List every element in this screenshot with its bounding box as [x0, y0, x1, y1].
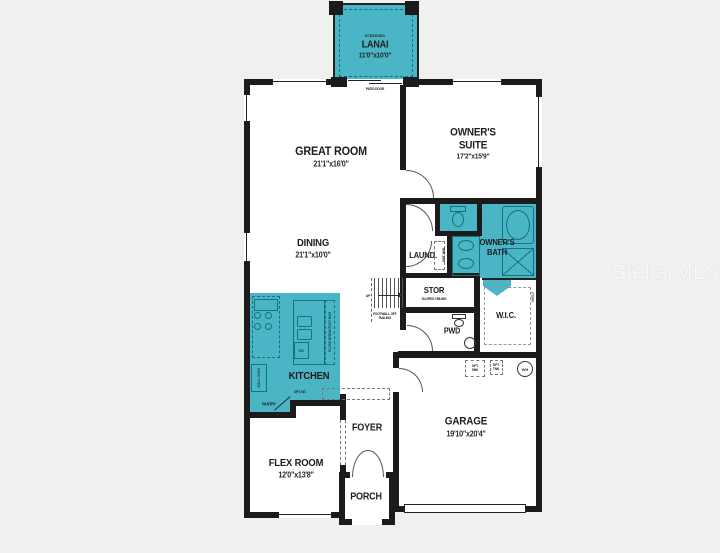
window	[278, 512, 332, 518]
flex-room-dims: 12'0"x13'8"	[278, 470, 313, 479]
window	[244, 94, 250, 122]
water-heater-icon: WH	[517, 361, 533, 377]
window	[244, 232, 250, 262]
foyer-label: FOYER	[352, 422, 382, 434]
island-sink-icon	[297, 316, 312, 327]
opt-kitchen-outline	[322, 388, 390, 400]
island-sink-icon	[297, 329, 312, 340]
wall-thin	[482, 278, 536, 280]
stairs-up-label: UP	[366, 294, 370, 298]
pwd-label: PWD	[444, 326, 460, 335]
opt-kitchen-note: OPT. KIT.	[294, 390, 306, 394]
stairs-arrow-icon	[398, 292, 403, 298]
wall	[244, 412, 296, 418]
patio-door	[347, 79, 403, 85]
stor-label: STOR	[424, 286, 444, 296]
dishwasher-label: DW	[298, 349, 303, 353]
lanai-post	[405, 1, 419, 15]
floor-plan: WH SCREENED LANAI 11'0"x10'0" PATIO DOOR…	[0, 0, 720, 553]
toilet-icon	[452, 212, 464, 227]
garage-label: GARAGE	[445, 416, 487, 429]
wall-oven-label: WALL OVEN	[257, 368, 261, 388]
cooktop-burner	[254, 323, 261, 330]
wall	[400, 198, 542, 204]
lanai-screen-wall-right	[417, 3, 419, 85]
garage-dims: 19'10"x20'4"	[446, 429, 485, 438]
cooktop-burner	[254, 312, 261, 319]
porch-label: PORCH	[350, 491, 382, 503]
sink-icon	[458, 258, 474, 269]
wall	[244, 79, 250, 518]
breakfast-bar-note: FLUSH BREAKFAST BAR	[328, 312, 332, 352]
wall	[290, 400, 346, 406]
stairs-direction-line	[378, 295, 398, 296]
lanai-post	[329, 1, 343, 15]
wic-shelf-note: SHELF	[531, 292, 535, 303]
wic-label: W.I.C.	[496, 311, 516, 321]
wall	[382, 519, 395, 525]
sink-icon	[464, 337, 476, 349]
garage-door	[404, 504, 526, 513]
cooktop-burner	[265, 323, 272, 330]
wall	[339, 478, 345, 525]
lanai-screen-wall-left	[333, 3, 335, 85]
pantry-label: PANTRY	[262, 403, 276, 408]
laundry-label: LAUND.	[409, 251, 437, 261]
wall	[339, 519, 352, 525]
window	[536, 96, 542, 168]
lanai-post	[331, 77, 347, 87]
window	[452, 79, 502, 85]
garage-opt-tank-label: OPT. TNK	[491, 363, 502, 371]
dining-dims: 21'1"x10'0"	[295, 250, 330, 259]
owners-suite-label: OWNER'S SUITE	[447, 126, 499, 151]
sink-icon	[458, 240, 474, 251]
lanai-tag: SCREENED	[365, 34, 385, 38]
stor-note: SLOPED CEILING	[422, 297, 447, 301]
cased-opening	[340, 420, 346, 465]
window	[272, 79, 327, 85]
bathtub-icon	[506, 210, 530, 240]
wall	[400, 85, 406, 170]
laundry-note: OPT. W/D	[442, 248, 446, 262]
kitchen-label: KITCHEN	[289, 370, 330, 382]
wall	[393, 352, 542, 358]
lanai-label: LANAI	[362, 39, 389, 51]
kitchen-appliance	[254, 299, 278, 311]
flex-room-label: FLEX ROOM	[269, 457, 324, 469]
great-room-dims: 21'1"x16'0"	[313, 159, 348, 168]
wall	[389, 478, 395, 525]
stairs-note: FOOTWALL OPT. RAILING	[372, 312, 399, 320]
owners-bath-label: OWNER'S BATH	[476, 238, 517, 258]
patio-door-label: PATIO DOOR	[366, 87, 384, 91]
great-room-label: GREAT ROOM	[295, 145, 367, 159]
wall	[393, 358, 399, 368]
cooktop-burner	[265, 312, 272, 319]
garage-opt-sink-label: OPT. SNK	[470, 364, 481, 372]
watermark: StellarMLS	[612, 261, 720, 285]
owners-suite-dims: 17'2"x15'9"	[457, 153, 490, 162]
dining-label: DINING	[297, 237, 329, 249]
wall	[400, 307, 480, 313]
water-heater-label: WH	[522, 367, 529, 372]
lanai-dims: 11'0"x10'0"	[359, 52, 392, 61]
